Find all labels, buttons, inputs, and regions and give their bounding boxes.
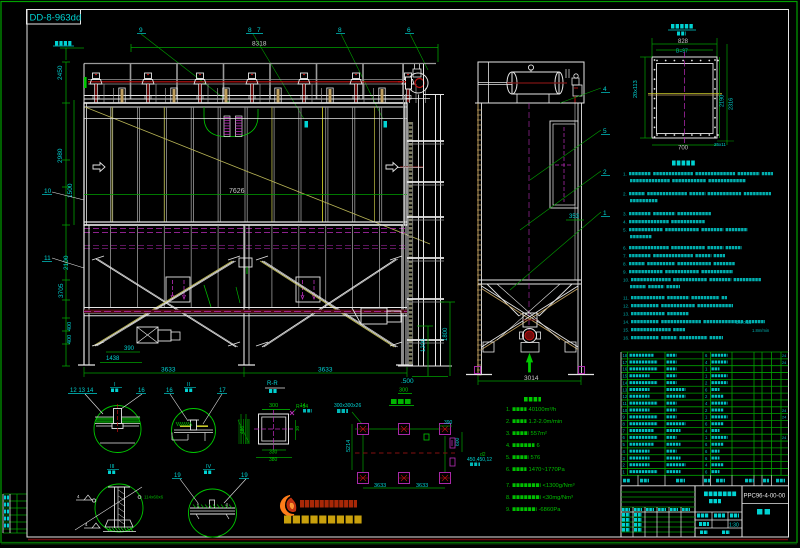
- svg-text:7: 7: [257, 27, 261, 34]
- svg-text:-6860Pa: -6860Pa: [539, 507, 562, 513]
- svg-text:11: 11: [44, 255, 51, 262]
- svg-text:10: 10: [44, 188, 52, 195]
- svg-text:6: 6: [537, 443, 540, 449]
- svg-text:4.: 4.: [623, 219, 627, 224]
- svg-text:24: 24: [782, 354, 786, 358]
- svg-text:1.8m/min: 1.8m/min: [752, 328, 770, 333]
- svg-text:576: 576: [531, 455, 541, 461]
- svg-text:2.: 2.: [623, 191, 627, 196]
- svg-text:2316: 2316: [729, 98, 735, 110]
- svg-text:10: 10: [623, 408, 628, 413]
- svg-text:8: 8: [338, 27, 342, 34]
- svg-text:1.: 1.: [506, 407, 511, 413]
- svg-text:3.: 3.: [623, 211, 627, 216]
- svg-text:17: 17: [219, 388, 226, 394]
- svg-text:9: 9: [139, 27, 143, 34]
- svg-text:15: 15: [623, 374, 628, 379]
- svg-text:1470~1770Pa: 1470~1770Pa: [529, 467, 566, 473]
- svg-text:6.: 6.: [506, 467, 511, 473]
- svg-text:25x11: 25x11: [714, 142, 726, 147]
- svg-text:13: 13: [623, 387, 628, 392]
- svg-text:5.: 5.: [623, 227, 627, 232]
- svg-text:390: 390: [124, 346, 135, 352]
- svg-text:1800: 1800: [443, 327, 449, 341]
- svg-text:480: 480: [240, 425, 246, 434]
- svg-text:12.: 12.: [623, 303, 629, 308]
- svg-text:10.: 10.: [623, 277, 629, 282]
- svg-text:<30mg/Nm³: <30mg/Nm³: [543, 495, 574, 501]
- svg-text:1:30: 1:30: [729, 523, 739, 529]
- svg-text:<1300g/Nm³: <1300g/Nm³: [543, 483, 575, 489]
- svg-text:3633: 3633: [318, 367, 333, 374]
- svg-text:380: 380: [269, 457, 278, 463]
- svg-text:11: 11: [623, 401, 628, 406]
- svg-text:7626: 7626: [229, 188, 245, 195]
- svg-text:19: 19: [174, 473, 181, 479]
- svg-text:1200: 1200: [421, 338, 427, 352]
- svg-text:1: 1: [603, 210, 607, 217]
- svg-text:8.: 8.: [506, 495, 511, 501]
- svg-text:16: 16: [138, 388, 145, 394]
- svg-text:19: 19: [241, 473, 248, 479]
- svg-text:24: 24: [782, 409, 786, 413]
- svg-text:30: 30: [295, 425, 300, 431]
- svg-text:B=97: B=97: [676, 49, 688, 55]
- svg-text:330: 330: [269, 450, 278, 456]
- svg-text:3633: 3633: [416, 483, 428, 489]
- svg-text:DD-8-963dd: DD-8-963dd: [30, 13, 82, 24]
- svg-text:300: 300: [399, 388, 408, 394]
- svg-text:IV: IV: [206, 464, 212, 470]
- svg-text:1438: 1438: [106, 356, 120, 362]
- svg-text:11.: 11.: [623, 295, 629, 300]
- svg-text:2190: 2190: [720, 95, 726, 107]
- svg-text:8: 8: [248, 27, 252, 34]
- svg-text:2.: 2.: [506, 419, 511, 425]
- svg-text:5.: 5.: [506, 455, 511, 461]
- svg-text:13.: 13.: [623, 311, 629, 316]
- svg-text:353: 353: [569, 214, 580, 220]
- svg-text:16: 16: [623, 367, 628, 372]
- svg-text:16: 16: [166, 388, 173, 394]
- svg-text:9.: 9.: [623, 269, 627, 274]
- svg-text:5: 5: [603, 128, 607, 135]
- svg-text:24: 24: [782, 361, 786, 365]
- svg-text:3014: 3014: [524, 375, 539, 382]
- svg-text:9.: 9.: [506, 507, 511, 513]
- svg-text:6.: 6.: [623, 245, 627, 250]
- svg-text:8.: 8.: [623, 261, 627, 266]
- svg-text:16.: 16.: [623, 335, 629, 340]
- svg-text:3633: 3633: [374, 483, 386, 489]
- svg-text:400: 400: [67, 335, 73, 344]
- svg-text:300x300x26: 300x300x26: [334, 403, 361, 409]
- svg-text:3705: 3705: [58, 283, 65, 298]
- svg-text:3.: 3.: [506, 431, 511, 437]
- svg-text:450,450,12: 450,450,12: [467, 457, 492, 463]
- svg-text:0.4-0.56: 0.4-0.56: [736, 320, 752, 325]
- svg-text:II: II: [187, 382, 191, 388]
- svg-text:20x113: 20x113: [633, 80, 639, 98]
- svg-text:1.: 1.: [623, 171, 627, 176]
- svg-text:18: 18: [623, 353, 628, 358]
- svg-text:300: 300: [269, 403, 278, 409]
- svg-text:1.2-2.0m/min: 1.2-2.0m/min: [529, 419, 563, 425]
- svg-text:12 13 14: 12 13 14: [70, 388, 94, 394]
- svg-text:4: 4: [603, 86, 607, 93]
- svg-text:12: 12: [623, 394, 628, 399]
- svg-text:14.: 14.: [623, 319, 629, 324]
- svg-text:2980: 2980: [57, 148, 64, 163]
- svg-text:3633: 3633: [161, 367, 176, 374]
- svg-text:PPC96-4-00-00: PPC96-4-00-00: [744, 494, 786, 500]
- svg-text:4.: 4.: [506, 443, 511, 449]
- svg-text:8318: 8318: [252, 41, 267, 48]
- svg-text:390: 390: [444, 420, 453, 426]
- svg-text:114x60x6: 114x60x6: [144, 495, 164, 500]
- svg-text:7.: 7.: [623, 253, 627, 258]
- svg-text:557m²: 557m²: [531, 431, 548, 437]
- svg-text:R=14: R=14: [296, 404, 308, 410]
- svg-text:17: 17: [623, 360, 628, 365]
- svg-text:15.: 15.: [623, 327, 629, 332]
- svg-text:R-R: R-R: [267, 381, 278, 387]
- svg-text:2: 2: [603, 169, 607, 176]
- svg-text:6: 6: [407, 27, 411, 34]
- svg-text:600: 600: [455, 437, 461, 446]
- svg-text:.500: .500: [401, 378, 414, 385]
- svg-text:7.: 7.: [506, 483, 511, 489]
- svg-text:2450: 2450: [57, 65, 64, 80]
- svg-text:III: III: [110, 464, 115, 470]
- svg-text:24: 24: [782, 436, 786, 440]
- svg-text:700: 700: [678, 146, 689, 152]
- svg-text:24: 24: [782, 416, 786, 420]
- svg-text:40100m³/h: 40100m³/h: [529, 407, 557, 413]
- svg-text:14: 14: [623, 380, 628, 385]
- svg-text:5214: 5214: [346, 440, 352, 452]
- svg-text:400: 400: [67, 322, 73, 331]
